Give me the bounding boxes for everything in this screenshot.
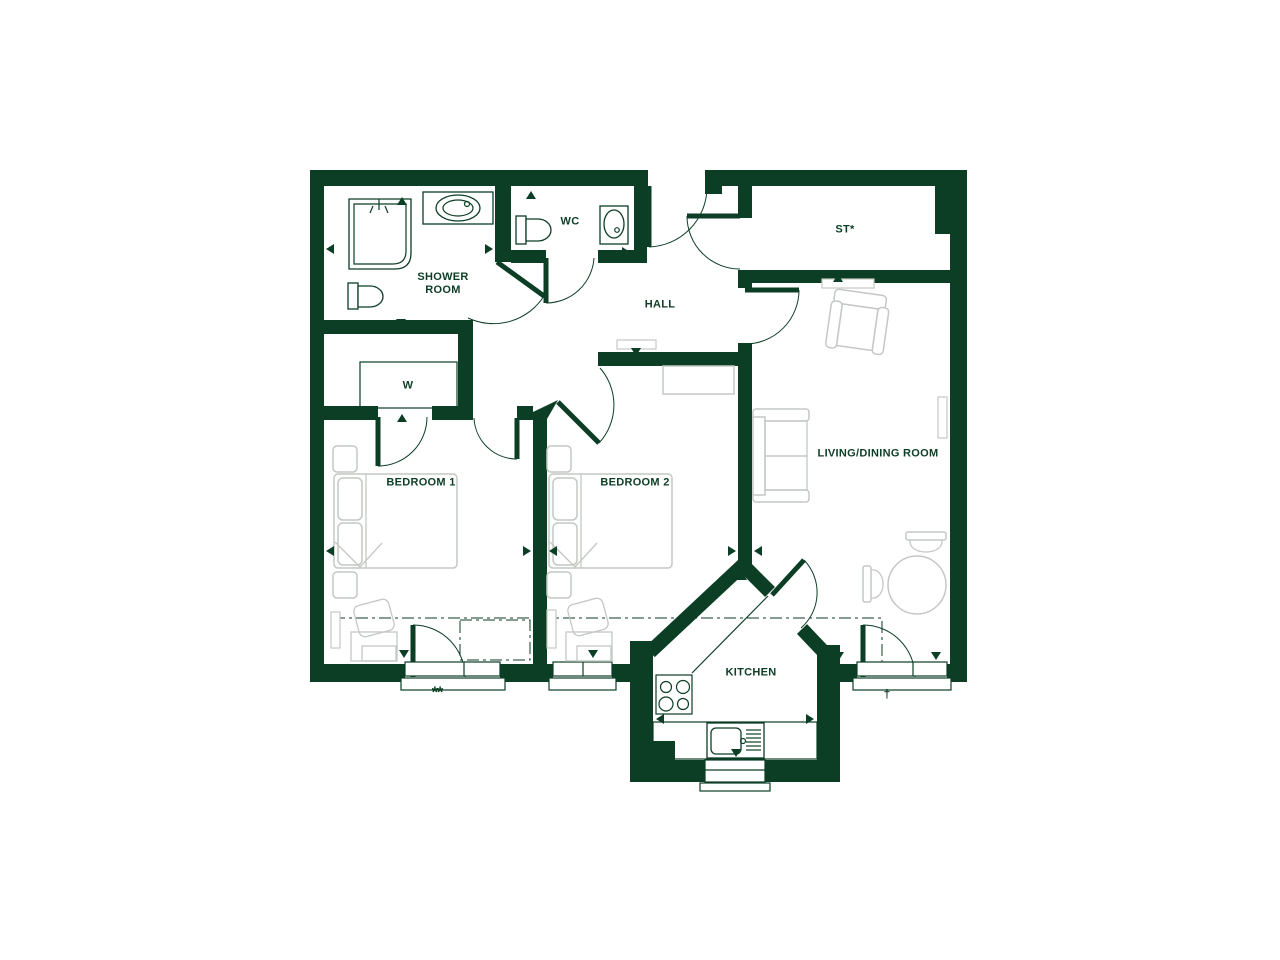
arrow-marker <box>326 546 334 556</box>
room-label-bedroom1: BEDROOM 1 <box>386 477 455 490</box>
room-label-store: ST* <box>835 224 854 237</box>
room-label-wc: WC <box>561 216 580 229</box>
shower-toilet-icon <box>348 283 383 309</box>
armchair-icon <box>825 289 891 355</box>
wc-basin-icon <box>600 206 628 244</box>
hall-radiator <box>617 340 656 349</box>
arrow-marker <box>526 191 536 199</box>
arrow-marker <box>399 650 409 658</box>
wall-store-left <box>738 186 752 218</box>
wall-bed1-stub <box>517 406 533 420</box>
arrow-marker <box>523 546 531 556</box>
living-window-sill <box>853 678 951 690</box>
wall-shower-wc <box>495 186 511 262</box>
dining-chair-icon <box>906 532 946 540</box>
bedroom1-radiator <box>331 612 340 648</box>
wall-wc-right <box>634 186 647 256</box>
shower-icon <box>349 199 411 269</box>
arrow-marker <box>485 244 493 254</box>
hob-icon <box>656 675 692 714</box>
shower-door-arc <box>468 296 544 324</box>
bedroom2-closet <box>663 366 734 394</box>
arrow-marker <box>931 652 941 660</box>
living-window-note: † <box>884 687 891 701</box>
wall-kitchen-diag-right <box>742 564 770 592</box>
shower-basin-icon <box>423 192 493 224</box>
wall-wardrobe-right <box>458 320 473 410</box>
room-label-shower-room: SHOWER ROOM <box>408 271 478 297</box>
wall-kitchen-right <box>817 645 840 782</box>
bedroom1-door-arc <box>474 418 517 459</box>
wc-toilet-icon <box>516 216 551 244</box>
dining-table-icon <box>863 532 946 614</box>
sofa-icon <box>753 409 809 502</box>
bedroom1-desk-icon <box>351 598 397 661</box>
bedroom2-radiator <box>547 610 556 648</box>
wall-top-left <box>310 170 648 186</box>
living-radiator <box>938 397 947 438</box>
bedroom1-window <box>405 662 500 676</box>
kitchen-window-sill <box>700 783 770 791</box>
wall-corner-block <box>935 186 967 234</box>
bedroom2-door-arc <box>599 368 614 443</box>
wardrobe-door-arc <box>378 417 427 466</box>
wc-door-arc <box>546 258 594 303</box>
room-label-wardrobe: W <box>403 380 414 393</box>
kitchen-door-leaf <box>772 560 804 595</box>
wall-right <box>950 234 967 682</box>
bedroom2-window-sill <box>549 678 616 690</box>
wall-entrance-stub <box>705 186 722 194</box>
bedroom1-clear-zone <box>460 620 530 660</box>
room-label-living-dining: LIVING/DINING ROOM <box>818 448 939 461</box>
bedroom2-door-leaf <box>558 402 599 443</box>
chair-icon <box>566 597 609 637</box>
arrow-marker <box>754 546 762 556</box>
living-door-arc <box>745 290 799 344</box>
dining-chair-icon <box>863 566 871 602</box>
wall-kitchen-diag-left <box>650 564 744 652</box>
bedroom1-window-note: ** <box>432 685 442 704</box>
wall-bottom-2 <box>500 664 553 682</box>
wall-living-left-upper <box>738 270 752 288</box>
room-label-kitchen: KITCHEN <box>726 667 777 680</box>
store-radiator <box>822 279 874 288</box>
wall-living-left-lower <box>738 343 752 366</box>
bed2-icon <box>547 446 672 598</box>
wall-bottom-1 <box>310 664 405 682</box>
shower-door-leaf <box>497 262 544 296</box>
arrow-marker <box>397 414 407 422</box>
wall-kitchen-step <box>653 741 675 760</box>
living-window <box>857 662 947 676</box>
floor-plan: SHOWER ROOM WC HALL ST* W BEDROOM 1 BEDR… <box>0 0 1280 960</box>
wall-bed2-living <box>738 366 752 570</box>
arrow-marker <box>326 244 334 254</box>
kitchen-window <box>705 760 765 782</box>
wall-top-right <box>705 170 967 186</box>
bedroom1-window-sill <box>401 678 505 690</box>
arrow-marker <box>728 546 736 556</box>
wall-hall-bed2 <box>598 352 740 366</box>
room-label-hall: HALL <box>645 299 676 312</box>
arrow-marker <box>588 650 598 658</box>
wall-left <box>310 186 324 682</box>
bed1-icon <box>333 446 457 598</box>
wall-bed1-bed2 <box>533 412 547 666</box>
room-label-bedroom2: BEDROOM 2 <box>600 477 669 490</box>
wall-wc-bottom-left <box>511 250 546 263</box>
wall-kitchen-bottom-left <box>630 760 707 782</box>
